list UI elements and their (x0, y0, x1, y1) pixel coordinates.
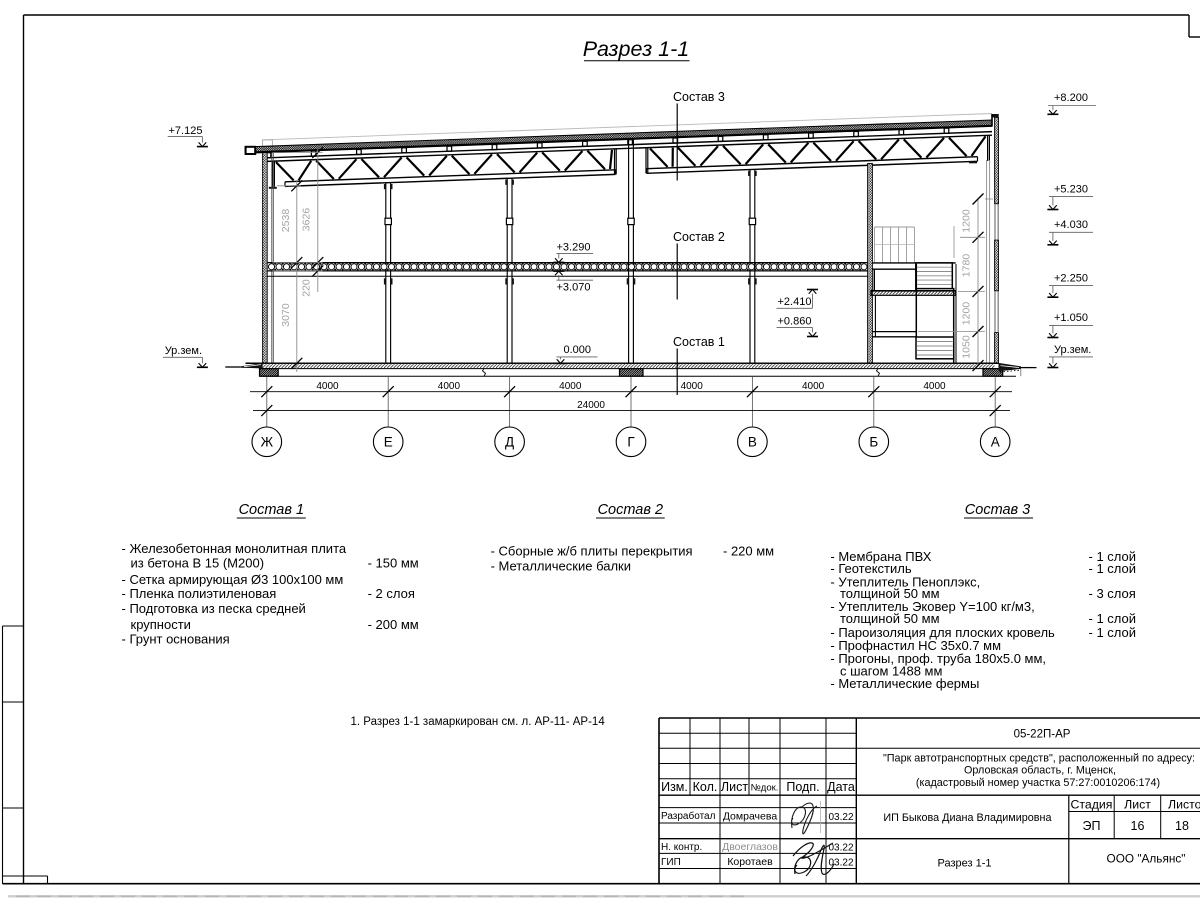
svg-text:- 200 мм: - 200 мм (368, 617, 419, 632)
svg-text:Двоеглазов: Двоеглазов (722, 841, 778, 853)
svg-text:Орловская область, г. Мценск,: Орловская область, г. Мценск, (964, 765, 1116, 777)
svg-text:- 2 слоя: - 2 слоя (368, 586, 415, 601)
svg-text:Разрез 1-1: Разрез 1-1 (583, 37, 690, 61)
svg-text:- Пленка полиэтиленовая: - Пленка полиэтиленовая (122, 586, 277, 601)
svg-text:1200: 1200 (961, 209, 973, 233)
svg-text:Лист: Лист (721, 780, 748, 794)
svg-text:- Металлические балки: - Металлические балки (491, 559, 631, 574)
svg-text:4000: 4000 (923, 381, 946, 392)
svg-text:+3.070: +3.070 (557, 282, 591, 294)
svg-text:А: А (991, 435, 1000, 450)
svg-text:Состав 1: Состав 1 (673, 335, 725, 349)
svg-text:ГИП: ГИП (661, 857, 681, 868)
svg-text:1050: 1050 (961, 335, 973, 359)
svg-text:Состав 2: Состав 2 (598, 502, 663, 518)
svg-text:- Сборные ж/б плиты перекрытия: - Сборные ж/б плиты перекрытия (491, 544, 693, 559)
svg-text:3626: 3626 (301, 208, 313, 232)
svg-text:(кадастровый номер участка 57:: (кадастровый номер участка 57:27:0010206… (916, 777, 1160, 789)
svg-text:4000: 4000 (802, 381, 825, 392)
svg-text:1780: 1780 (961, 254, 973, 278)
svg-text:- Грунт основания: - Грунт основания (122, 631, 230, 646)
svg-text:ЭП: ЭП (1083, 819, 1101, 833)
svg-text:05-22П-АР: 05-22П-АР (1014, 728, 1071, 740)
svg-text:4000: 4000 (559, 381, 582, 392)
svg-text:ООО "Альянс": ООО "Альянс" (1107, 852, 1186, 866)
svg-text:+2.410: +2.410 (778, 296, 812, 308)
svg-text:Разрез 1-1: Разрез 1-1 (937, 858, 991, 870)
svg-text:4000: 4000 (681, 381, 704, 392)
svg-text:Кол.: Кол. (693, 780, 718, 794)
svg-text:+4.030: +4.030 (1054, 219, 1088, 231)
svg-text:Б: Б (869, 435, 878, 450)
svg-text:4000: 4000 (316, 381, 339, 392)
svg-text:ИП Быкова Диана Владимировна: ИП Быкова Диана Владимировна (883, 812, 1051, 824)
svg-text:+2.250: +2.250 (1054, 272, 1088, 284)
svg-text:Г: Г (627, 435, 635, 450)
svg-text:1. Разрез 1-1 замаркирован см.: 1. Разрез 1-1 замаркирован см. л. АР-11-… (351, 716, 606, 728)
svg-text:Е: Е (384, 435, 393, 450)
svg-text:+0.860: +0.860 (778, 316, 812, 328)
svg-text:220: 220 (301, 279, 313, 297)
svg-text:крупности: крупности (131, 617, 191, 632)
svg-text:+1.050: +1.050 (1054, 312, 1088, 324)
svg-text:Разработал: Разработал (661, 810, 716, 822)
svg-text:+8.200: +8.200 (1054, 92, 1088, 104)
svg-text:Состав 3: Состав 3 (965, 502, 1030, 518)
svg-text:- Железобетонная монолитная п: - Железобетонная монолитная плита (122, 541, 347, 556)
svg-text:Д: Д (505, 435, 514, 450)
svg-text:Ж: Ж (261, 435, 274, 450)
svg-text:- Подготовка из песка средней: - Подготовка из песка средней (122, 601, 306, 616)
svg-text:№док.: №док. (751, 782, 779, 793)
svg-text:- 3 слоя: - 3 слоя (1089, 586, 1136, 601)
svg-text:Н. контр.: Н. контр. (661, 842, 702, 853)
svg-text:+5.230: +5.230 (1054, 183, 1088, 195)
svg-text:2538: 2538 (280, 209, 292, 233)
svg-text:Коротаев: Коротаев (727, 856, 773, 868)
svg-text:- 1 слой: - 1 слой (1089, 625, 1137, 640)
svg-text:Состав 3: Состав 3 (673, 90, 725, 104)
svg-text:Ур.зем.: Ур.зем. (1054, 344, 1091, 356)
svg-text:Изм.: Изм. (661, 780, 688, 794)
svg-text:03.22: 03.22 (828, 812, 853, 823)
svg-text:+7.125: +7.125 (169, 125, 203, 137)
svg-text:+3.290: +3.290 (557, 242, 591, 254)
svg-text:- Металлические фермы: - Металлические фермы (830, 676, 979, 691)
svg-text:из бетона В 15 (М200): из бетона В 15 (М200) (131, 555, 265, 570)
svg-text:Листов: Листов (1168, 797, 1200, 811)
svg-text:- 1 слой: - 1 слой (1089, 561, 1137, 576)
svg-text:4000: 4000 (438, 381, 461, 392)
svg-text:18: 18 (1175, 819, 1189, 833)
svg-text:В: В (748, 435, 757, 450)
svg-text:3070: 3070 (280, 303, 292, 327)
svg-text:"Парк автотранспортных средств: "Парк автотранспортных средств", располо… (883, 753, 1195, 765)
svg-text:Лист: Лист (1124, 797, 1151, 811)
svg-text:16: 16 (1131, 819, 1145, 833)
svg-text:Состав 1: Состав 1 (239, 502, 304, 518)
svg-text:24000: 24000 (577, 400, 605, 411)
svg-text:Дата: Дата (827, 780, 855, 794)
svg-text:- 220 мм: - 220 мм (723, 544, 774, 559)
svg-text:Подп.: Подп. (786, 780, 819, 794)
svg-text:Стадия: Стадия (1071, 797, 1113, 811)
svg-text:- Сетка армирующая Ø3 100х100: - Сетка армирующая Ø3 100х100 мм (122, 572, 344, 587)
svg-text:- 1 слой: - 1 слой (1089, 611, 1137, 626)
svg-text:толщиной 50 мм: толщиной 50 мм (840, 611, 940, 626)
svg-text:0.000: 0.000 (564, 344, 592, 356)
svg-text:Домрачева: Домрачева (723, 811, 778, 823)
svg-text:- 150 мм: - 150 мм (368, 555, 419, 570)
svg-text:1200: 1200 (961, 302, 973, 326)
svg-text:Состав 2: Состав 2 (673, 230, 725, 244)
svg-text:Ур.зем.: Ур.зем. (165, 345, 202, 357)
